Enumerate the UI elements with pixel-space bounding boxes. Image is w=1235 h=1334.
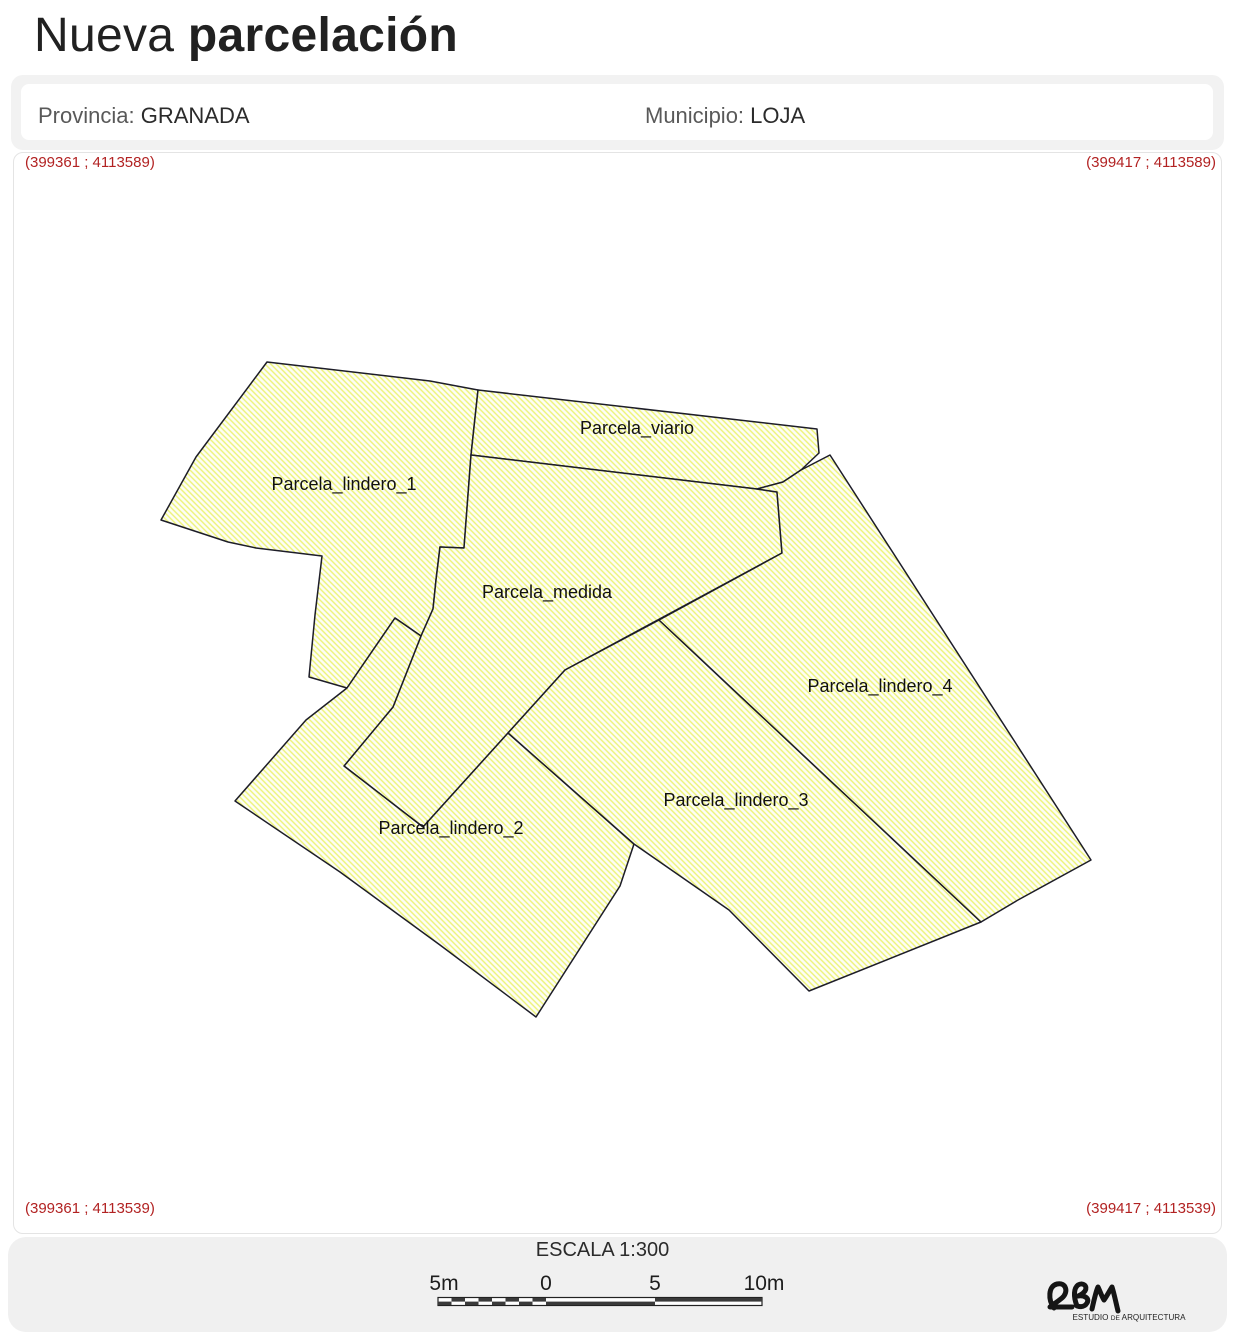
- svg-text:ESTUDIO DE ARQUITECTURA: ESTUDIO DE ARQUITECTURA: [1072, 1313, 1186, 1322]
- svg-text:10m: 10m: [744, 1272, 785, 1295]
- svg-text:0: 0: [540, 1272, 552, 1295]
- svg-text:5: 5: [649, 1272, 661, 1295]
- svg-text:5m: 5m: [429, 1272, 458, 1295]
